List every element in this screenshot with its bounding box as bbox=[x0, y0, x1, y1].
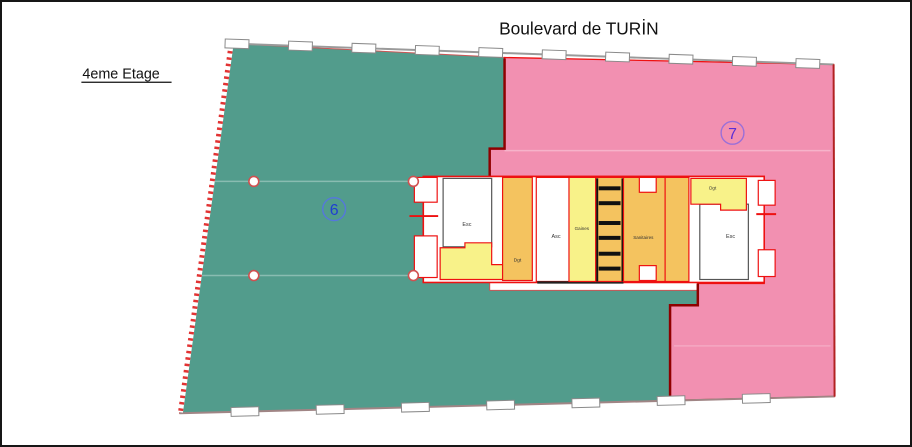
window-notch bbox=[316, 405, 344, 415]
door-landing bbox=[414, 236, 437, 278]
window-notch bbox=[732, 56, 756, 66]
stairs-right-room bbox=[700, 204, 749, 279]
door-landing bbox=[758, 250, 775, 277]
column bbox=[408, 271, 418, 281]
corridor-left-room bbox=[503, 177, 533, 280]
right-facade-line bbox=[834, 64, 835, 396]
toilets-notch bbox=[639, 266, 656, 281]
window-notch bbox=[231, 407, 259, 417]
zone-7-number: 7 bbox=[728, 126, 737, 143]
window-notch bbox=[225, 39, 249, 49]
toilets-label: Sanitaires bbox=[633, 235, 654, 240]
corridor-right-label: Dgt bbox=[709, 185, 717, 190]
window-notch bbox=[401, 402, 429, 412]
service-core: Esc Dgt Asc Gaines Sanitaires bbox=[409, 176, 776, 282]
duct-bank bbox=[596, 177, 624, 281]
door-landing bbox=[758, 180, 775, 205]
window-notch bbox=[288, 41, 312, 51]
corridor-strip bbox=[665, 177, 689, 281]
corridor-left-label: Dgt bbox=[514, 258, 522, 264]
window-notch bbox=[606, 52, 630, 62]
window-notch bbox=[796, 59, 820, 69]
zone-6-number: 6 bbox=[330, 202, 339, 219]
toilets-notch bbox=[639, 177, 656, 192]
shafts-label: Gaines bbox=[575, 226, 590, 231]
window-notch bbox=[657, 396, 685, 406]
window-notch bbox=[572, 398, 600, 408]
column bbox=[249, 271, 259, 281]
column bbox=[249, 176, 259, 186]
window-notch bbox=[415, 45, 439, 55]
elevator-label: Asc bbox=[552, 234, 561, 240]
floor-label: 4eme Etage bbox=[82, 66, 159, 82]
window-notch bbox=[669, 54, 693, 64]
stairs-left-room bbox=[443, 178, 492, 246]
floor-plan-drawing: Esc Dgt Asc Gaines Sanitaires bbox=[2, 2, 910, 445]
window-notch bbox=[542, 50, 566, 60]
window-notch bbox=[479, 48, 503, 58]
floor-plan-page: Esc Dgt Asc Gaines Sanitaires bbox=[0, 0, 912, 447]
stairs-right-label: Esc bbox=[726, 234, 735, 240]
window-notch bbox=[742, 394, 770, 404]
floor-label-group: 4eme Etage bbox=[81, 66, 171, 82]
window-notch bbox=[352, 43, 376, 53]
stairs-left-label: Esc bbox=[462, 222, 471, 228]
window-notch bbox=[487, 400, 515, 410]
street-title: Boulevard de TURİN bbox=[499, 19, 659, 39]
column bbox=[408, 176, 418, 186]
